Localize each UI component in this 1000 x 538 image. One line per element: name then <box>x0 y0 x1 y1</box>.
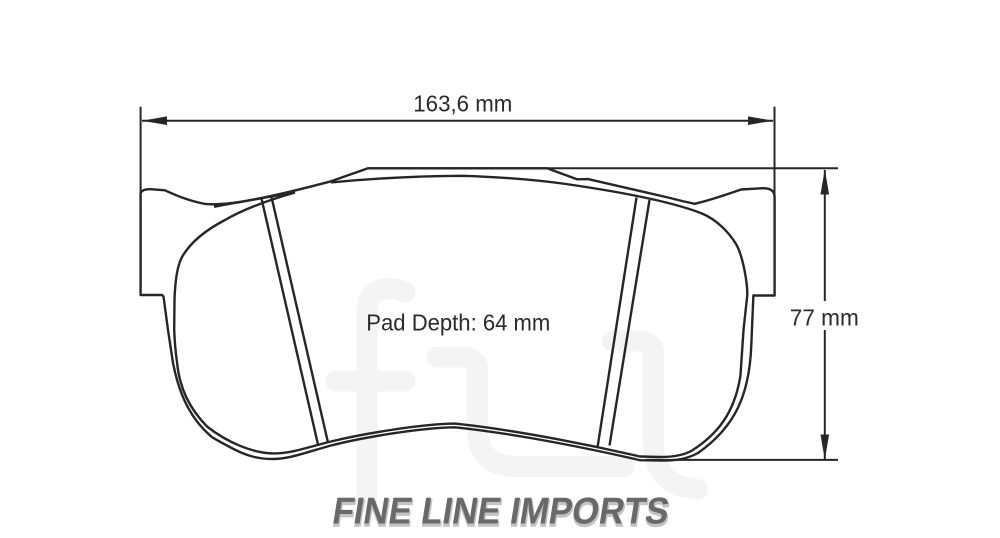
svg-text:77 mm: 77 mm <box>790 304 859 330</box>
svg-text:Pad Depth: 64 mm: Pad Depth: 64 mm <box>366 309 550 335</box>
svg-text:FINE LINE IMPORTS: FINE LINE IMPORTS <box>330 490 673 532</box>
svg-text:163,6 mm: 163,6 mm <box>413 90 512 116</box>
